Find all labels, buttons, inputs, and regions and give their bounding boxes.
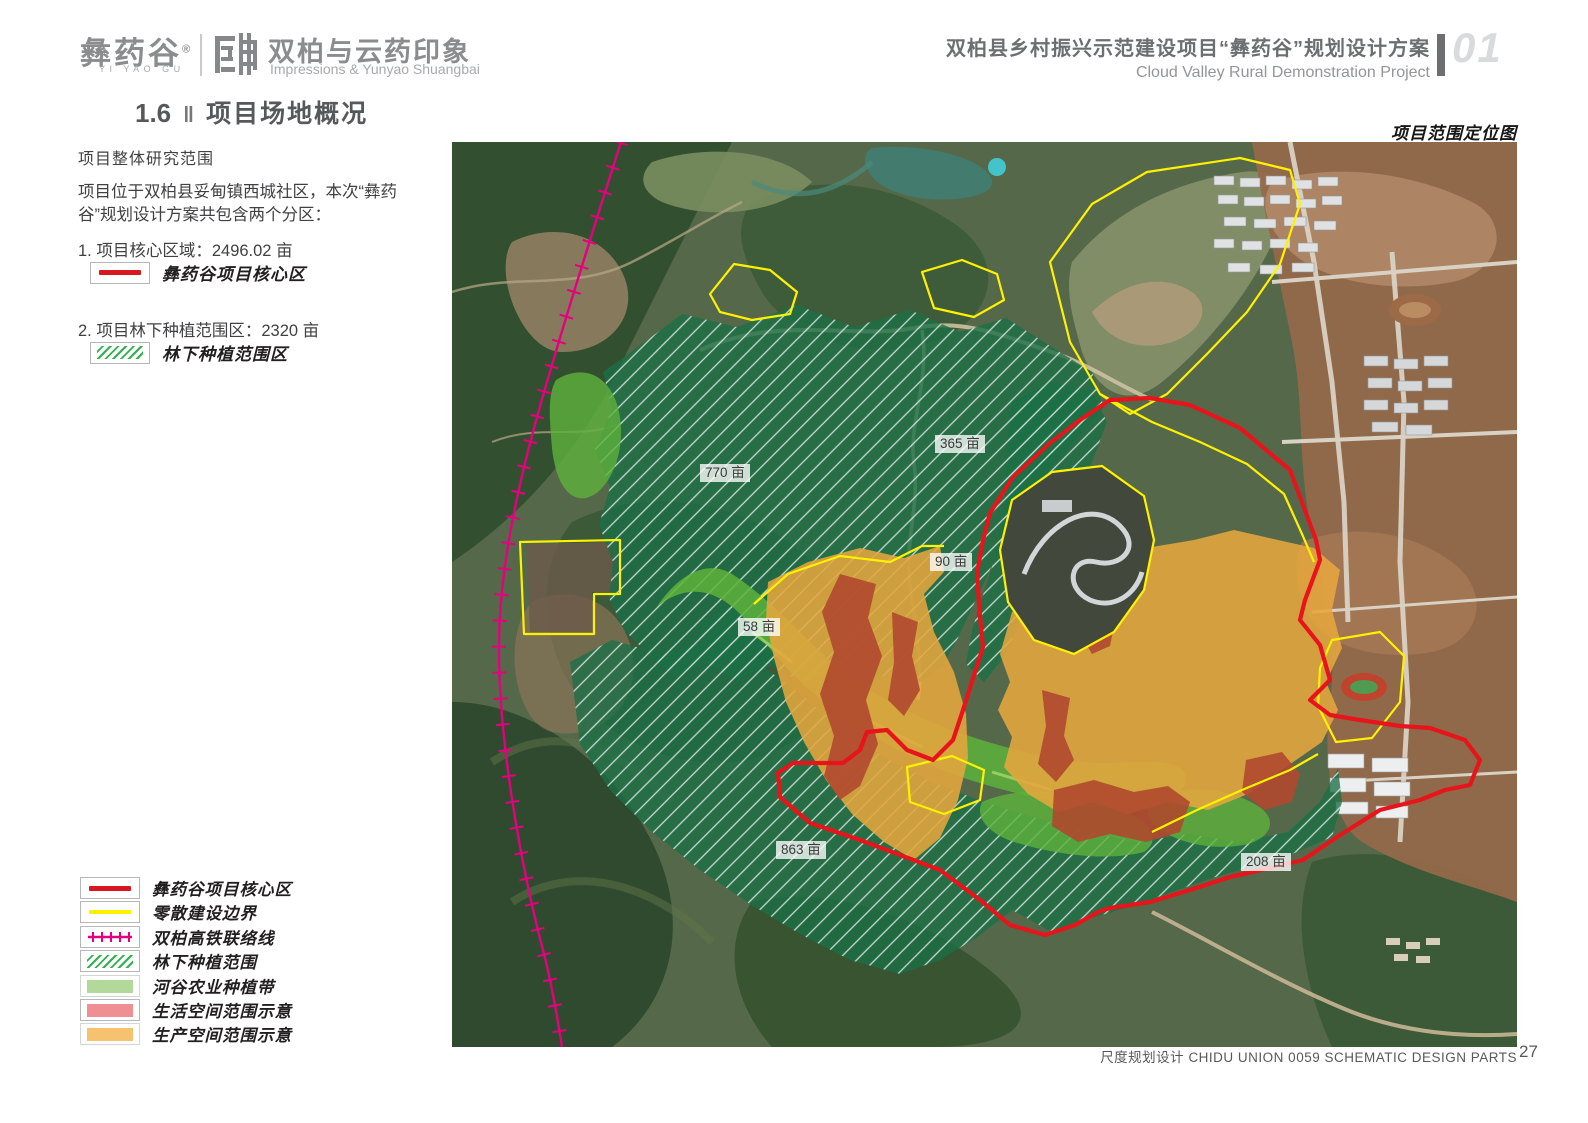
legend-item-valley: 河谷农业种植带 xyxy=(80,974,275,998)
map-area-label: 770 亩 xyxy=(700,464,750,482)
map-area-label: 365 亩 xyxy=(935,435,985,453)
list-item-core-area: 1. 项目核心区域：2496.02 亩 xyxy=(78,237,293,261)
legend-label: 生活空间范围示意 xyxy=(152,998,292,1022)
legend-swatch-railway-line xyxy=(80,926,140,948)
legend-item-core: 彝药谷项目核心区 xyxy=(80,876,292,900)
section-title: 项目场地概况 xyxy=(206,94,368,130)
legend-label: 生产空间范围示意 xyxy=(152,1022,292,1046)
legend-label: 林下种植范围 xyxy=(152,949,257,973)
legend-swatch-green-hatch xyxy=(80,950,140,972)
design-credit: 尺度规划设计 CHIDU UNION 0059 SCHEMATIC DESIGN… xyxy=(1100,1046,1517,1066)
legend-swatch-red-line xyxy=(90,262,150,284)
legend-item-scattered: 零散建设边界 xyxy=(80,900,257,924)
core-area-legend-label: 彝药谷项目核心区 xyxy=(162,260,306,285)
legend-swatch-valley-fill xyxy=(80,975,140,997)
project-title-en: Cloud Valley Rural Demonstration Project xyxy=(946,64,1430,82)
understory-legend-label: 林下种植范围区 xyxy=(162,340,288,365)
legend-item-production: 生产空间范围示意 xyxy=(80,1022,292,1046)
map-area-label: 90 亩 xyxy=(930,553,972,571)
railway-line-icon xyxy=(87,930,133,944)
legend-item-railway: 双柏高铁联络线 xyxy=(80,925,275,949)
section-number: 1.6 xyxy=(135,98,171,129)
seal-logo-icon xyxy=(213,31,259,82)
chapter-bar xyxy=(1437,34,1445,76)
chapter-number: 01 xyxy=(1452,24,1503,72)
list-item-understory-area: 2. 项目林下种植范围区：2320 亩 xyxy=(78,317,319,341)
map-title: 项目范围定位图 xyxy=(1391,119,1517,144)
understory-legend: 林下种植范围区 xyxy=(90,340,288,365)
map-area-label: 58 亩 xyxy=(738,618,780,636)
section-separator: ‖ xyxy=(183,102,194,128)
page-number: 27 xyxy=(1519,1042,1538,1062)
header-divider xyxy=(200,34,202,76)
brand-name-en: YI YAO GU xyxy=(99,64,185,74)
map-area-label: 208 亩 xyxy=(1241,853,1291,871)
project-title: 双柏县乡村振兴示范建设项目“彝药谷”规划设计方案 xyxy=(946,32,1430,61)
legend-swatch-red-line xyxy=(80,877,140,899)
legend-item-living: 生活空间范围示意 xyxy=(80,998,292,1022)
core-area-legend: 彝药谷项目核心区 xyxy=(90,260,306,285)
page: 彝药谷® YI YAO GU 双柏与云药印象 Impressions & Yun… xyxy=(0,0,1588,1123)
study-scope-subtitle: 项目整体研究范围 xyxy=(78,145,214,169)
partner-title-en: Impressions & Yunyao Shuangbai xyxy=(270,61,480,77)
project-title-block: 双柏县乡村振兴示范建设项目“彝药谷”规划设计方案 Cloud Valley Ru… xyxy=(946,32,1430,82)
legend-label: 零散建设边界 xyxy=(152,900,257,924)
legend-swatch-green-hatch xyxy=(90,342,150,364)
legend-swatch-living-fill xyxy=(80,999,140,1021)
legend-label: 彝药谷项目核心区 xyxy=(152,876,292,900)
map-area-label: 863 亩 xyxy=(776,841,826,859)
section-heading: 1.6 ‖ 项目场地概况 xyxy=(135,94,368,130)
legend-label: 双柏高铁联络线 xyxy=(152,925,275,949)
legend-swatch-production-fill xyxy=(80,1023,140,1045)
registered-mark: ® xyxy=(182,44,190,56)
legend-swatch-yellow-line xyxy=(80,901,140,923)
legend-item-understory: 林下种植范围 xyxy=(80,949,257,973)
site-map: 770 亩 365 亩 90 亩 58 亩 863 亩 208 亩 xyxy=(452,142,1517,1047)
intro-paragraph: 项目位于双柏县妥甸镇西城社区，本次“彝药谷”规划设计方案共包含两个分区： xyxy=(78,181,432,228)
legend-label: 河谷农业种植带 xyxy=(152,974,275,998)
